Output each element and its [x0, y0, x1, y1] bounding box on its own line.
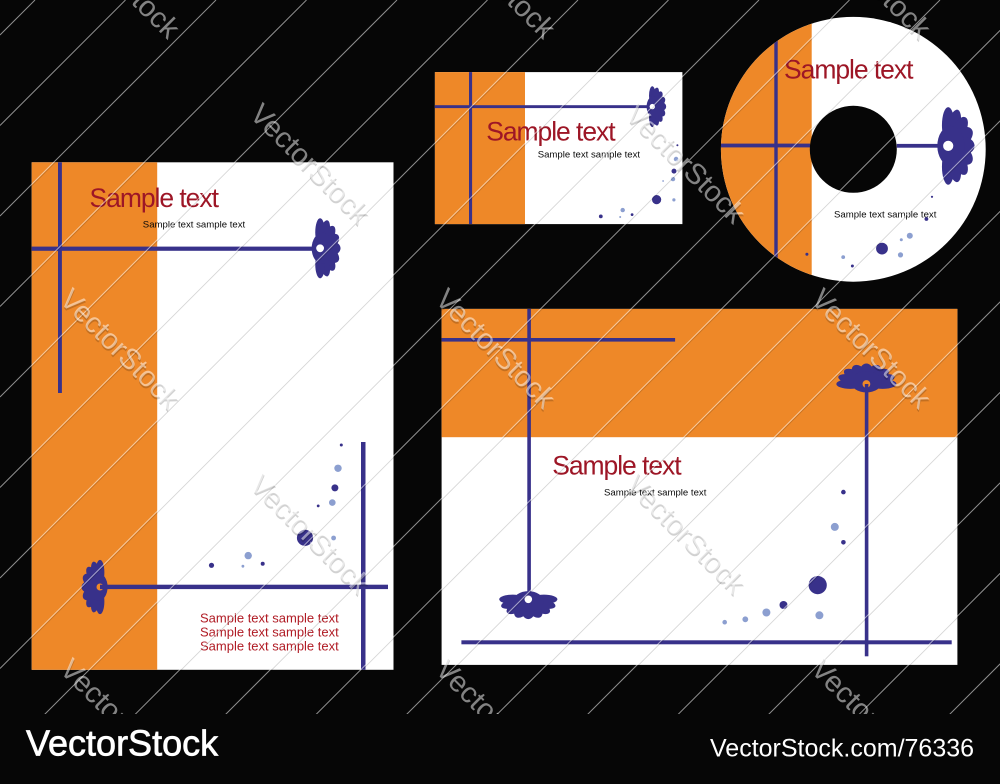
svg-text:Sample text sample text: Sample text sample text [200, 625, 339, 640]
svg-text:Sample text sample text: Sample text sample text [538, 150, 641, 161]
svg-text:VectorStock.com/76336: VectorStock.com/76336 [710, 735, 974, 763]
svg-text:Sample text sample text: Sample text sample text [143, 219, 246, 230]
svg-text:Sample text: Sample text [486, 117, 616, 147]
svg-text:VectorStock: VectorStock [26, 723, 219, 764]
svg-text:Sample text sample text: Sample text sample text [834, 210, 937, 221]
svg-text:Sample text sample text: Sample text sample text [200, 639, 339, 654]
svg-text:Sample text: Sample text [784, 54, 914, 84]
svg-text:Sample text: Sample text [552, 450, 682, 480]
